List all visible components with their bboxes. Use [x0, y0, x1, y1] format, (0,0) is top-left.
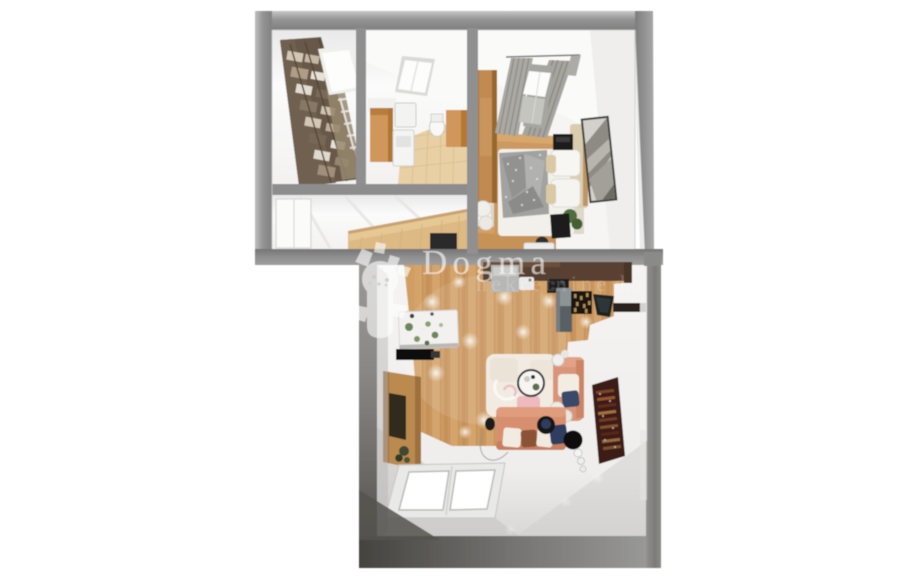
svg-text:nekretnine: nekretnine [476, 271, 606, 296]
svg-text:d.o: d.o [614, 271, 642, 296]
